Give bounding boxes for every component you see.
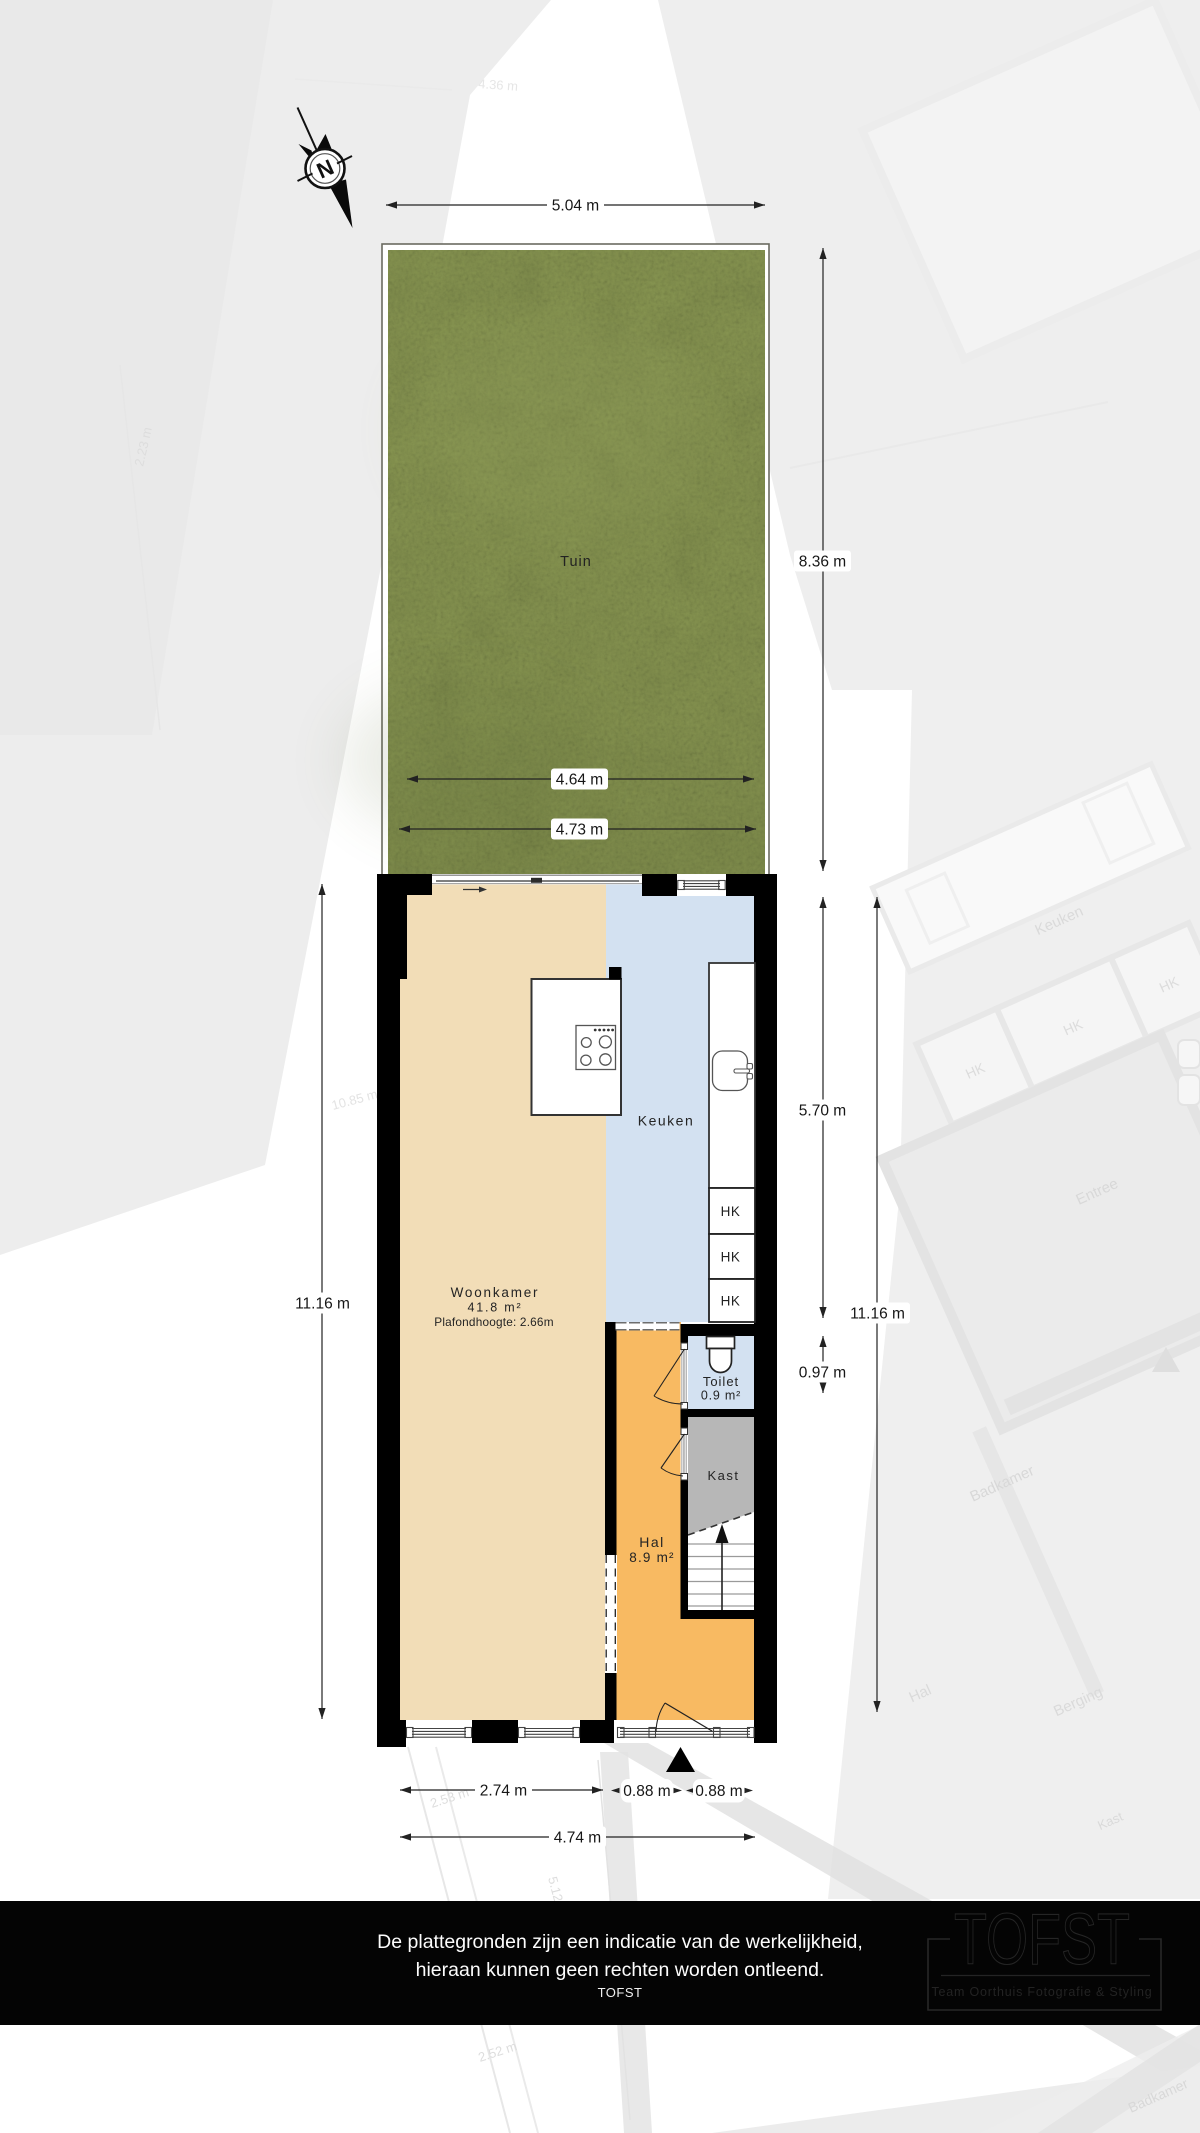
svg-text:5.04 m: 5.04 m <box>552 198 599 215</box>
svg-text:0.88 m: 0.88 m <box>623 1783 670 1800</box>
svg-text:Tuin: Tuin <box>560 554 592 570</box>
svg-text:4.64 m: 4.64 m <box>556 772 603 789</box>
svg-text:2.74 m: 2.74 m <box>480 1783 527 1800</box>
svg-text:hieraan kunnen geen rechten wo: hieraan kunnen geen rechten worden ontle… <box>416 1959 825 1981</box>
svg-text:0.97 m: 0.97 m <box>799 1365 846 1382</box>
svg-text:8.36 m: 8.36 m <box>799 554 846 571</box>
svg-text:8.9 m²: 8.9 m² <box>629 1550 674 1565</box>
svg-text:Team Oorthuis Fotografie & Sty: Team Oorthuis Fotografie & Styling <box>931 1985 1152 1999</box>
svg-text:De plattegronden zijn een indi: De plattegronden zijn een indicatie van … <box>377 1931 863 1953</box>
svg-text:Keuken: Keuken <box>638 1113 694 1129</box>
svg-text:11.16 m: 11.16 m <box>850 1306 905 1323</box>
svg-text:11.16 m: 11.16 m <box>295 1296 350 1313</box>
svg-text:41.8 m²: 41.8 m² <box>468 1301 523 1315</box>
svg-text:HK: HK <box>721 1204 741 1219</box>
svg-text:5.70 m: 5.70 m <box>799 1103 846 1120</box>
svg-text:0.9 m²: 0.9 m² <box>701 1389 741 1403</box>
svg-text:4.36 m: 4.36 m <box>478 76 519 94</box>
svg-text:TOFST: TOFST <box>954 1900 1130 1980</box>
svg-text:0.88 m: 0.88 m <box>695 1783 742 1800</box>
svg-text:HK: HK <box>721 1250 741 1265</box>
svg-text:Hal: Hal <box>639 1534 665 1550</box>
svg-text:4.74 m: 4.74 m <box>554 1830 601 1847</box>
svg-text:HK: HK <box>721 1294 741 1309</box>
svg-text:TOFST: TOFST <box>598 1985 643 2000</box>
svg-text:Woonkamer: Woonkamer <box>451 1285 540 1300</box>
svg-text:Kast: Kast <box>707 1468 739 1483</box>
svg-text:4.73 m: 4.73 m <box>556 822 603 839</box>
svg-text:Plafondhoogte: 2.66m: Plafondhoogte: 2.66m <box>434 1315 553 1329</box>
svg-text:Toilet: Toilet <box>703 1374 739 1389</box>
